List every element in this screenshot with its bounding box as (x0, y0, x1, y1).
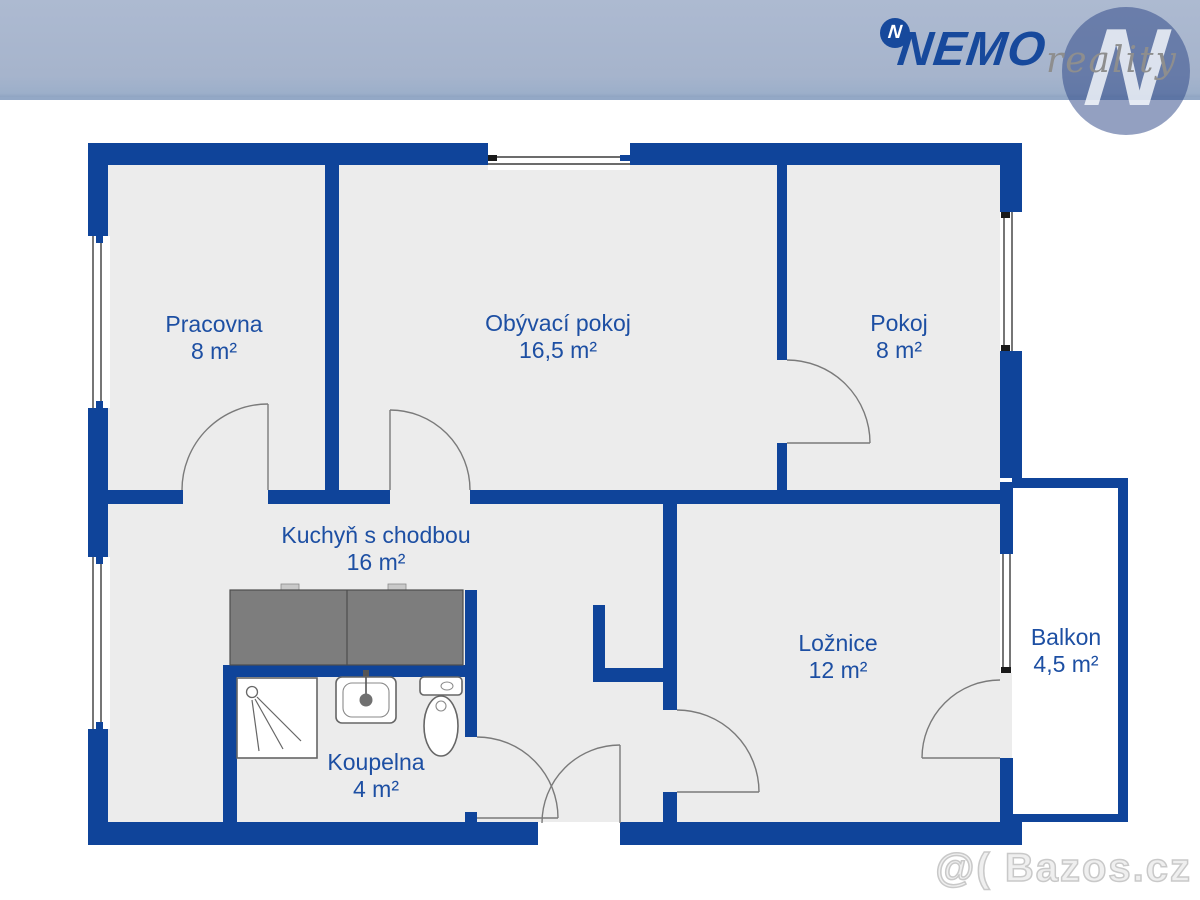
room-name: Balkon (1031, 624, 1101, 651)
room-area: 8 m² (165, 338, 262, 365)
room-name: Ložnice (798, 630, 877, 657)
room-label-balkon: Balkon 4,5 m² (1031, 624, 1101, 678)
room-label-koupelna: Koupelna 4 m² (327, 749, 424, 803)
room-area: 8 m² (870, 337, 928, 364)
window-pracovna (86, 236, 110, 408)
nemo-mini-logo-circle: N (880, 18, 910, 48)
window-balcony (1000, 548, 1013, 673)
room-area: 12 m² (798, 657, 877, 684)
room-name: Obývací pokoj (485, 310, 631, 337)
window-pokoj (1000, 212, 1022, 351)
room-label-obyvaci-pokoj: Obývací pokoj 16,5 m² (485, 310, 631, 364)
room-label-loznice: Ložnice 12 m² (798, 630, 877, 684)
window-living-room (488, 144, 630, 170)
reality-wordmark: reality (1046, 40, 1178, 81)
room-area: 16 m² (281, 549, 470, 576)
room-name: Koupelna (327, 749, 424, 776)
room-area: 16,5 m² (485, 337, 631, 364)
floorplan-svg (0, 0, 1200, 900)
room-label-kuchyn: Kuchyň s chodbou 16 m² (281, 522, 470, 576)
room-area: 4 m² (327, 776, 424, 803)
nemo-wordmark: NEMO (895, 22, 1050, 77)
page: N NEMO reality N (0, 0, 1200, 900)
kitchen-counter (230, 584, 463, 665)
window-kitchen (86, 557, 110, 729)
room-name: Kuchyň s chodbou (281, 522, 470, 549)
sink (336, 670, 396, 723)
room-area: 4,5 m² (1031, 651, 1101, 678)
shower (237, 678, 317, 758)
room-name: Pracovna (165, 311, 262, 338)
room-label-pokoj: Pokoj 8 m² (870, 310, 928, 364)
bazos-watermark: @( Bazos.cz (935, 846, 1192, 891)
room-label-pracovna: Pracovna 8 m² (165, 311, 262, 365)
room-name: Pokoj (870, 310, 928, 337)
mini-logo-n-glyph: N (878, 18, 911, 47)
